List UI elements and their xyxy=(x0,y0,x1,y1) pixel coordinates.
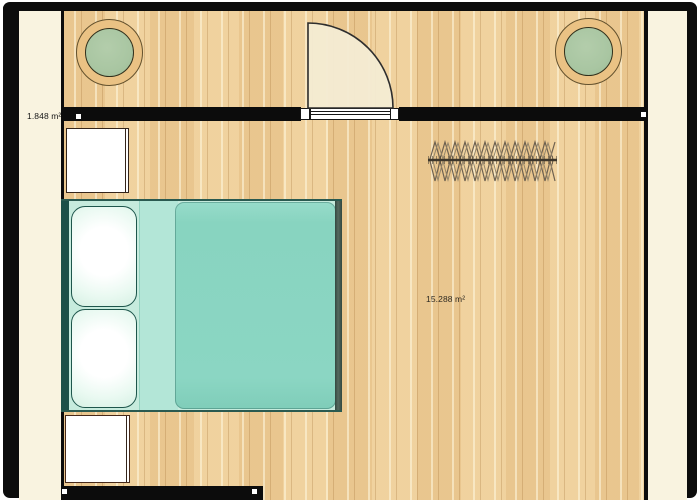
outer-walls[interactable] xyxy=(3,2,697,498)
area-label-bedroom: 15.288 m² xyxy=(426,294,465,304)
floor-plan: 1.848 m² 15.288 m² xyxy=(0,0,700,500)
wall-handle[interactable] xyxy=(62,489,67,494)
wall-handle[interactable] xyxy=(252,489,257,494)
wall-handle[interactable] xyxy=(641,112,646,117)
wall-handle[interactable] xyxy=(76,114,81,119)
area-label-hallway: 1.848 m² xyxy=(27,111,61,121)
